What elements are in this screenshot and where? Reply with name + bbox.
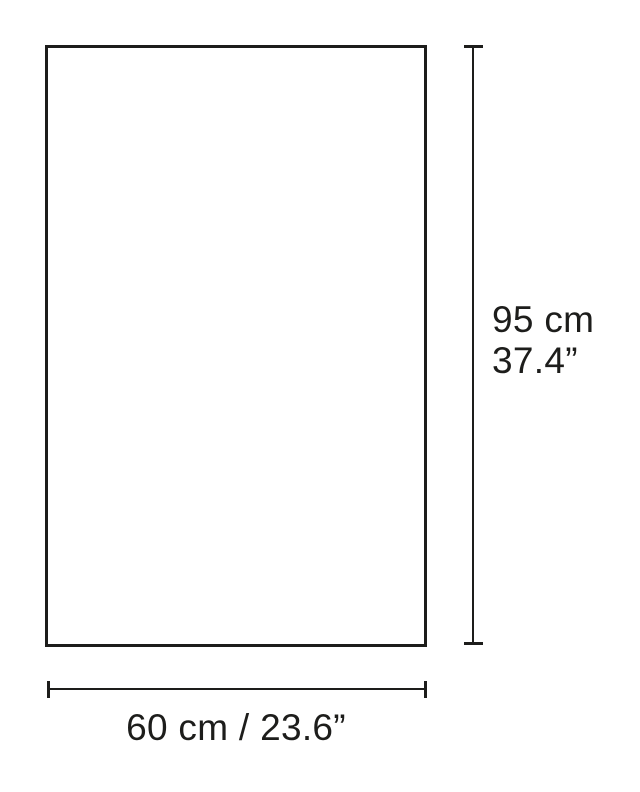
- height-dimension-tick-bottom: [464, 642, 483, 645]
- height-label-cm: 95 cm: [492, 299, 594, 340]
- width-dimension-line: [47, 688, 426, 690]
- width-label: 60 cm / 23.6”: [45, 707, 427, 748]
- product-outline-rectangle: [45, 45, 427, 647]
- width-dimension-tick-right: [424, 681, 427, 698]
- height-label-inches: 37.4”: [492, 340, 594, 381]
- height-dimension-line: [472, 45, 474, 645]
- height-label: 95 cm 37.4”: [492, 299, 594, 381]
- dimension-diagram: 95 cm 37.4” 60 cm / 23.6”: [0, 0, 640, 792]
